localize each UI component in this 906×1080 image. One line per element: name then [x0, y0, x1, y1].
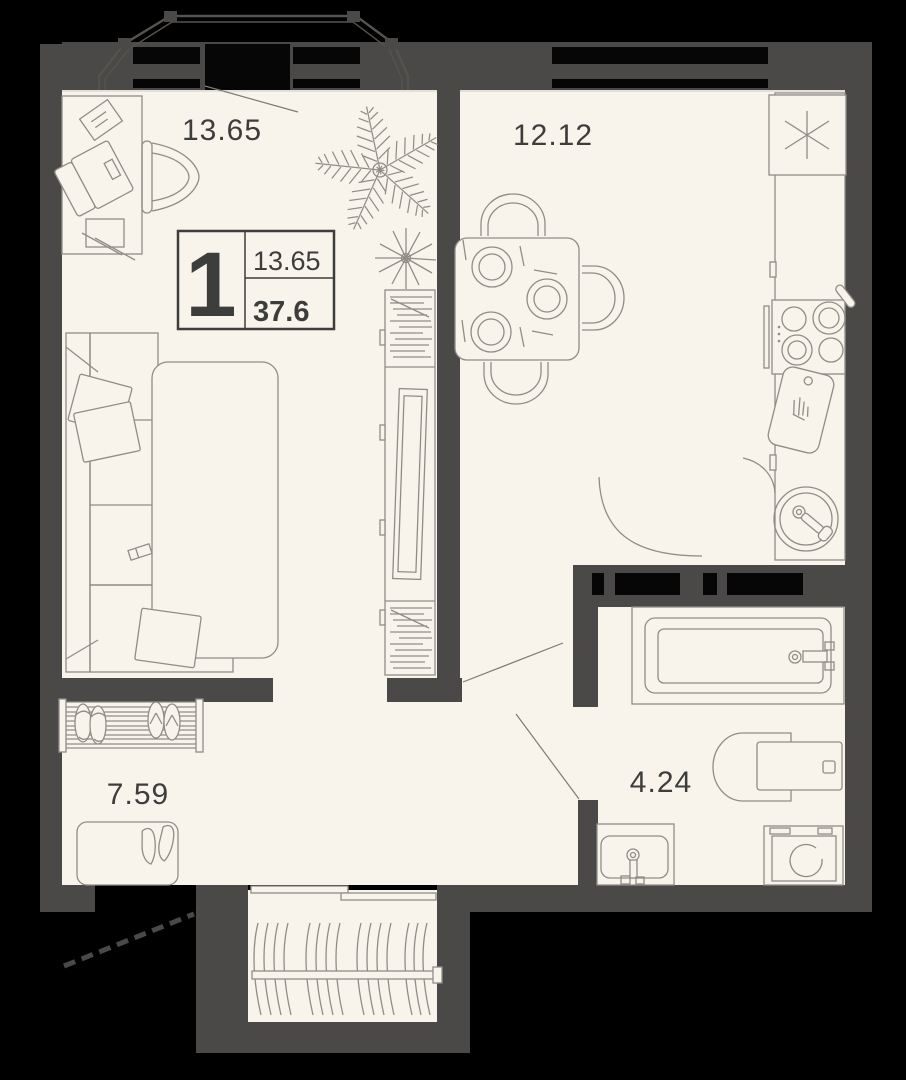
- kitchen-area-label: 12.12: [513, 119, 593, 152]
- wall-stub-upper: [573, 607, 598, 707]
- balcony-door: [205, 44, 290, 90]
- living-window-1: [133, 47, 200, 64]
- living-doorway-floor: [273, 678, 387, 702]
- floor-plan-canvas: 13.65 12.12 7.59 4.24 1 13.65 37.6: [0, 0, 906, 1080]
- pillow: [135, 608, 202, 668]
- corridor-floor: [460, 565, 573, 705]
- area-badge: 1 13.65 37.6: [178, 231, 334, 336]
- wall-right: [845, 42, 872, 912]
- wall-divider-left: [62, 678, 273, 702]
- wardrobe-mirror: [393, 389, 428, 580]
- wall-bottom-left: [40, 885, 95, 912]
- wall-partition: [437, 90, 460, 678]
- washing-machine-icon: [764, 826, 843, 885]
- wardrobe: [380, 290, 435, 675]
- badge-room-area: 13.65: [253, 246, 321, 276]
- wall-divider-right: [387, 678, 462, 702]
- living-room-area-label: 13.65: [182, 114, 262, 147]
- fridge-icon: [769, 95, 846, 175]
- wall-loggia-bottom: [196, 1022, 470, 1053]
- bathtub-icon: [632, 607, 844, 704]
- badge-rooms-count: 1: [185, 234, 236, 336]
- bathroom-area-label: 4.24: [630, 766, 692, 799]
- shoe-rack: [59, 699, 203, 752]
- sliding-door: [251, 886, 348, 893]
- floor-plan: 13.65 12.12 7.59 4.24 1 13.65 37.6: [0, 0, 906, 1080]
- washbasin-icon: [597, 824, 674, 885]
- wall-stub-lower: [578, 800, 598, 885]
- hallway-area-label: 7.59: [107, 778, 169, 811]
- badge-total-area: 37.6: [253, 296, 309, 328]
- living-window-2: [293, 47, 360, 64]
- wall-bottom-right: [437, 885, 872, 912]
- kitchen-window: [552, 47, 768, 64]
- sliding-door: [341, 893, 436, 900]
